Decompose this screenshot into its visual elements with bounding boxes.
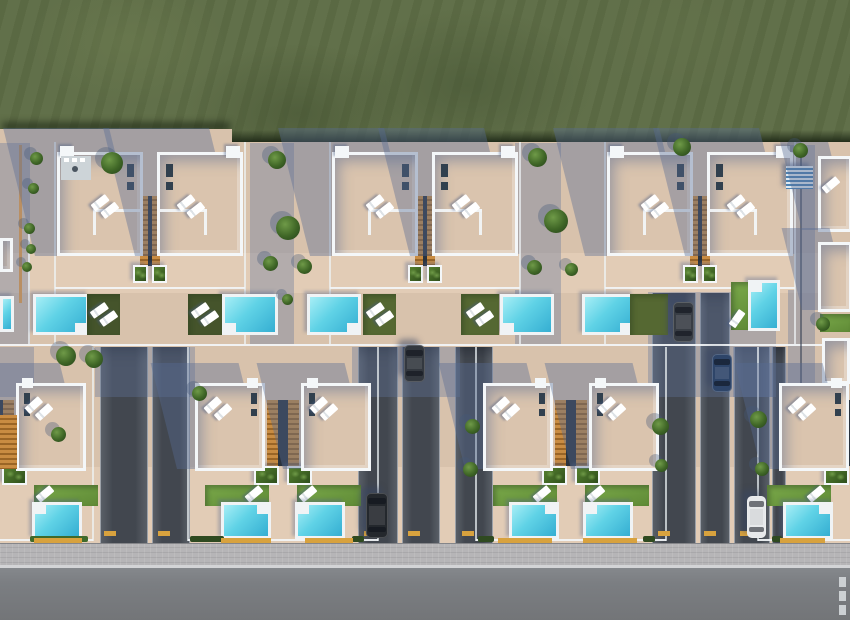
tree bbox=[101, 152, 123, 174]
road-marking-dash bbox=[839, 577, 846, 587]
pool-step bbox=[347, 323, 358, 332]
planter-box bbox=[408, 265, 423, 283]
car-rear-window bbox=[714, 381, 730, 386]
planter-box bbox=[702, 265, 717, 283]
tree bbox=[24, 223, 35, 234]
tree bbox=[465, 419, 480, 434]
tree bbox=[528, 148, 547, 167]
kitchen-unit bbox=[80, 158, 85, 162]
hedge bbox=[190, 536, 224, 542]
wall-line bbox=[754, 209, 757, 235]
hedge bbox=[643, 536, 655, 542]
roof-access-box bbox=[610, 146, 624, 158]
tree bbox=[26, 244, 36, 254]
tree bbox=[750, 411, 767, 428]
yellow-curb bbox=[408, 531, 420, 536]
tree bbox=[673, 138, 691, 156]
tree bbox=[268, 151, 286, 169]
wall-line bbox=[330, 287, 520, 289]
tree bbox=[56, 346, 76, 366]
car-roof bbox=[715, 367, 729, 379]
roof-access-box bbox=[535, 378, 546, 388]
roof-access-box bbox=[831, 378, 842, 388]
tree bbox=[544, 209, 568, 233]
car-rear-window bbox=[749, 527, 764, 532]
planter-box bbox=[427, 265, 442, 283]
pool-step bbox=[819, 505, 830, 514]
tree bbox=[565, 263, 578, 276]
car-windshield bbox=[675, 307, 692, 313]
car-rear-window bbox=[675, 331, 692, 336]
kitchen-unit bbox=[64, 158, 69, 162]
yellow-curb bbox=[158, 531, 170, 536]
car-roof bbox=[407, 358, 422, 369]
car-rear-window bbox=[406, 371, 423, 376]
car-windshield bbox=[714, 359, 730, 365]
plot-boundary-line bbox=[665, 347, 667, 541]
tree bbox=[527, 260, 542, 275]
tree bbox=[655, 459, 668, 472]
pool-water bbox=[3, 299, 11, 329]
tree bbox=[297, 259, 312, 274]
lawn bbox=[630, 294, 668, 335]
pool-step bbox=[586, 505, 597, 514]
pool-step bbox=[257, 505, 268, 514]
road-marking-dash bbox=[839, 605, 846, 615]
stairwell-opening bbox=[716, 164, 723, 177]
skylight bbox=[441, 182, 448, 190]
wall-line bbox=[368, 209, 371, 235]
sidewalk bbox=[0, 543, 850, 568]
pool-step bbox=[75, 323, 86, 332]
car-roof bbox=[676, 315, 691, 329]
plot-boundary-line bbox=[92, 347, 94, 541]
villa-house bbox=[818, 242, 850, 312]
planter-box bbox=[152, 265, 167, 283]
roof-access-box bbox=[247, 378, 258, 388]
hedge bbox=[478, 536, 494, 542]
roof-access-box bbox=[595, 378, 606, 388]
tree bbox=[755, 462, 769, 476]
car-windshield bbox=[749, 501, 764, 507]
roof-access-box bbox=[307, 378, 318, 388]
tree bbox=[282, 294, 293, 305]
tree bbox=[276, 216, 300, 240]
tree bbox=[816, 317, 830, 331]
wall-line bbox=[204, 209, 207, 235]
pool-step bbox=[545, 505, 556, 514]
roof-access-box bbox=[22, 378, 33, 388]
skylight bbox=[166, 182, 173, 190]
tree bbox=[30, 152, 43, 165]
planter-box bbox=[133, 265, 148, 283]
stairwell-opening bbox=[441, 164, 448, 177]
pool-step bbox=[751, 283, 762, 292]
yellow-curb bbox=[704, 531, 716, 536]
tree bbox=[793, 143, 808, 158]
skylight bbox=[716, 182, 723, 190]
skylight bbox=[539, 409, 545, 416]
yellow-curb bbox=[658, 531, 670, 536]
development-ground bbox=[0, 0, 850, 620]
car-windshield bbox=[406, 350, 423, 356]
skylight bbox=[251, 409, 257, 416]
outdoor-staircase bbox=[0, 415, 17, 469]
kitchen-unit bbox=[72, 158, 77, 162]
wall-line bbox=[479, 209, 482, 235]
tree bbox=[192, 386, 207, 401]
car-windshield bbox=[368, 498, 386, 504]
skylight bbox=[835, 409, 841, 416]
wall-line bbox=[55, 287, 245, 289]
villa-house bbox=[0, 238, 13, 272]
stairwell-opening bbox=[251, 393, 257, 404]
tree bbox=[85, 350, 103, 368]
planter-box bbox=[683, 265, 698, 283]
road-marking-dash bbox=[839, 591, 846, 601]
pool-step bbox=[35, 505, 46, 514]
wall-line bbox=[643, 209, 646, 235]
kitchen-sink bbox=[72, 166, 78, 172]
road bbox=[0, 568, 850, 620]
stairwell-opening bbox=[539, 393, 545, 404]
car-roof bbox=[750, 509, 763, 525]
pool-step bbox=[503, 323, 514, 332]
tree bbox=[652, 418, 669, 435]
wall-line bbox=[93, 209, 96, 235]
tree bbox=[263, 256, 278, 271]
tree bbox=[51, 427, 66, 442]
yellow-curb bbox=[104, 531, 116, 536]
roof-access-box bbox=[226, 146, 240, 158]
car-rear-window bbox=[368, 527, 386, 532]
stairwell-opening bbox=[835, 393, 841, 404]
tree bbox=[28, 183, 39, 194]
roof-access-box bbox=[335, 146, 349, 158]
roof-access-box bbox=[501, 146, 515, 158]
stairwell-opening bbox=[166, 164, 173, 177]
tree bbox=[463, 462, 478, 477]
pool-step bbox=[225, 323, 236, 332]
aerial-villa-development-render bbox=[0, 0, 850, 620]
yellow-curb bbox=[462, 531, 474, 536]
car-roof bbox=[369, 506, 385, 525]
wall-line bbox=[0, 344, 850, 346]
tree bbox=[22, 262, 32, 272]
hedge bbox=[352, 536, 364, 542]
pool-step bbox=[298, 505, 309, 514]
